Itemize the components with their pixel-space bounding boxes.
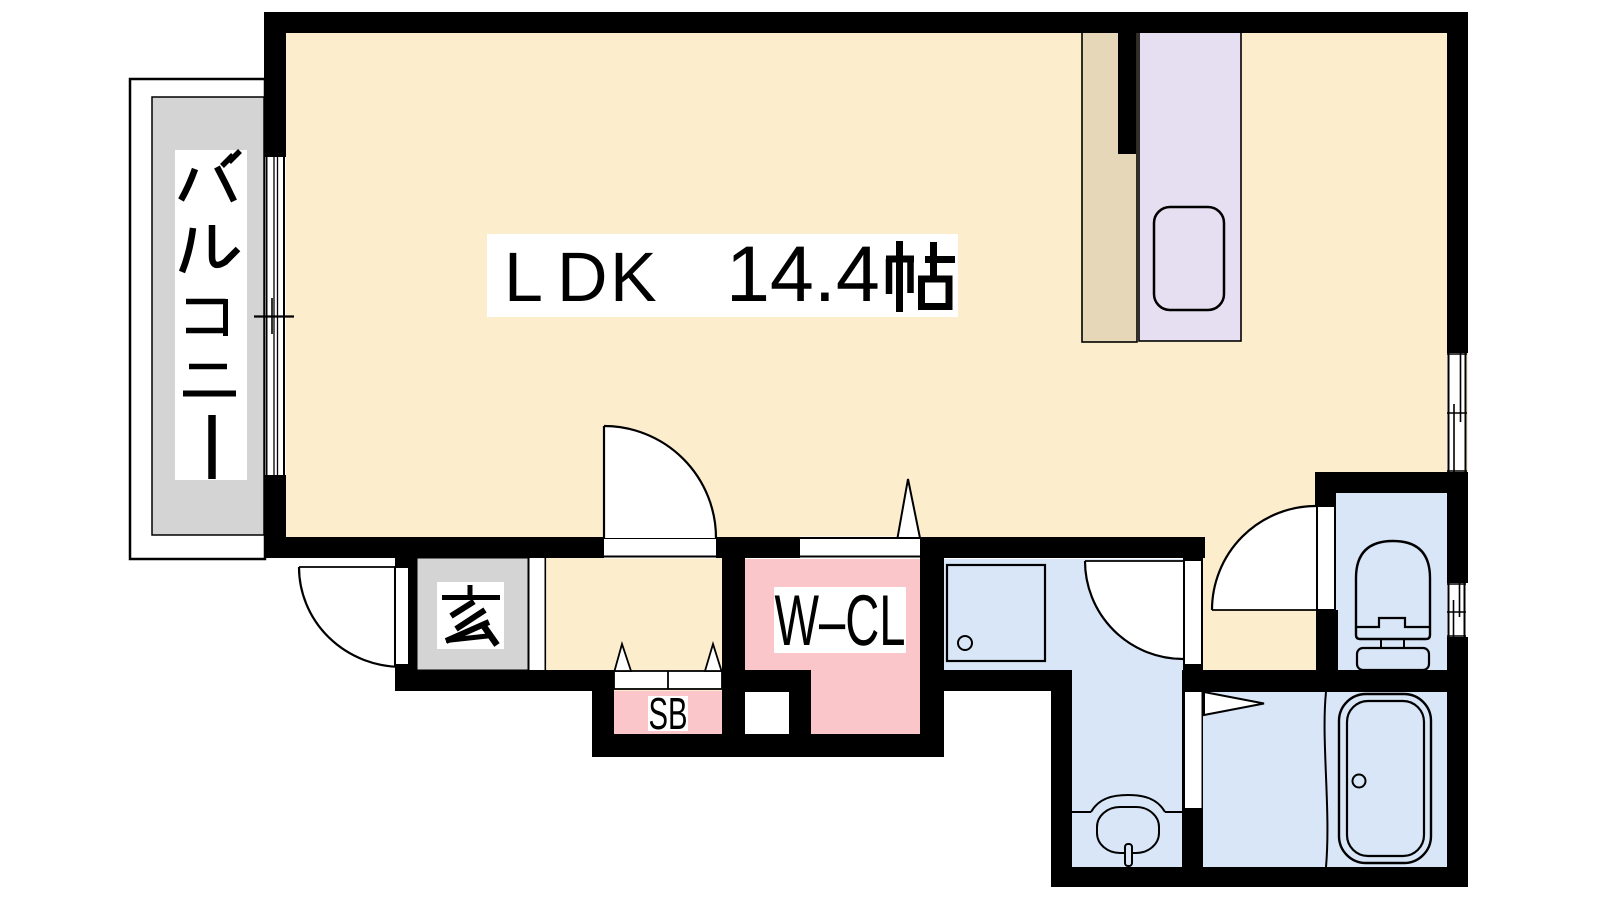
svg-text:L: L — [504, 238, 543, 316]
svg-text:W–CL: W–CL — [775, 581, 906, 661]
svg-text:K: K — [610, 238, 657, 316]
svg-text:SB: SB — [649, 688, 688, 739]
svg-text:D: D — [557, 238, 608, 316]
svg-text:14.4: 14.4 — [726, 229, 880, 318]
